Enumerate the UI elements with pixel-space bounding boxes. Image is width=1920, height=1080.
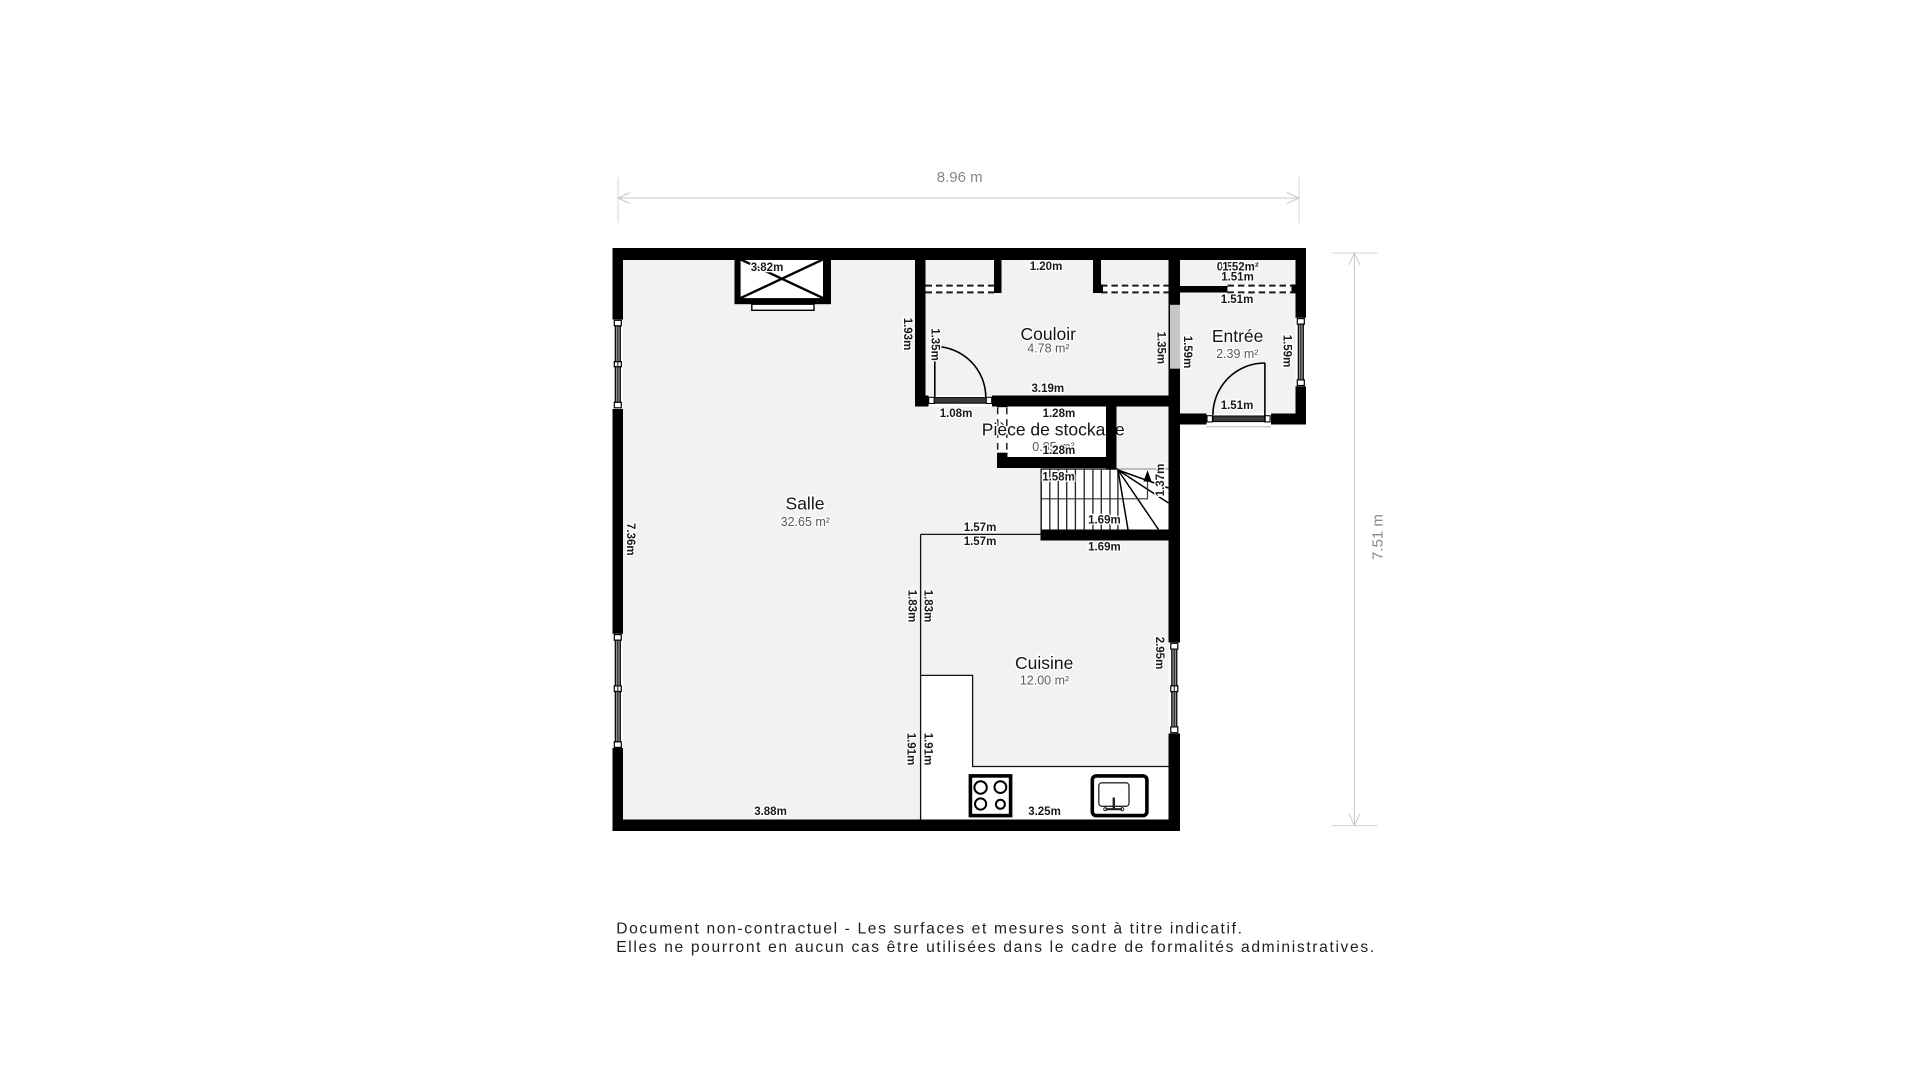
svg-text:3.88m: 3.88m bbox=[754, 806, 787, 818]
svg-text:1.35m: 1.35m bbox=[929, 328, 941, 361]
svg-text:1.51m: 1.51m bbox=[1221, 272, 1254, 284]
svg-text:1.83m: 1.83m bbox=[922, 590, 934, 623]
svg-text:1.57m: 1.57m bbox=[964, 522, 997, 534]
svg-text:1.93m: 1.93m bbox=[901, 318, 913, 351]
svg-text:Pièce de stockage: Pièce de stockage bbox=[982, 420, 1125, 440]
svg-text:1.69m: 1.69m bbox=[1088, 515, 1121, 527]
svg-text:Elles ne pourront en aucun cas: Elles ne pourront en aucun cas être util… bbox=[616, 939, 1376, 956]
svg-text:1.37m: 1.37m bbox=[1155, 464, 1167, 497]
svg-text:Cuisine: Cuisine bbox=[1015, 653, 1073, 673]
svg-text:8.96 m: 8.96 m bbox=[937, 169, 983, 186]
svg-text:1.57m: 1.57m bbox=[964, 536, 997, 548]
svg-text:7.51 m: 7.51 m bbox=[1369, 514, 1386, 560]
svg-text:Entrée: Entrée bbox=[1212, 326, 1264, 346]
svg-text:12.00 m²: 12.00 m² bbox=[1020, 674, 1069, 688]
svg-text:Salle: Salle bbox=[786, 494, 825, 514]
svg-text:1.51m: 1.51m bbox=[1221, 294, 1254, 306]
svg-text:1.83m: 1.83m bbox=[906, 590, 918, 623]
svg-text:7.36m: 7.36m bbox=[624, 523, 636, 556]
svg-text:1.58m: 1.58m bbox=[1042, 472, 1075, 484]
svg-text:3.25m: 3.25m bbox=[1028, 806, 1061, 818]
svg-text:1.69m: 1.69m bbox=[1088, 541, 1121, 553]
svg-text:1.91m: 1.91m bbox=[922, 733, 934, 766]
svg-text:1.20m: 1.20m bbox=[1030, 261, 1063, 273]
svg-text:1.51m: 1.51m bbox=[1221, 400, 1254, 412]
svg-text:1.28m: 1.28m bbox=[1043, 408, 1076, 420]
svg-text:1.28m: 1.28m bbox=[1043, 445, 1076, 457]
svg-text:2.95m: 2.95m bbox=[1153, 637, 1165, 670]
svg-text:1.08m: 1.08m bbox=[940, 408, 973, 420]
svg-text:3.19m: 3.19m bbox=[1031, 383, 1064, 395]
svg-text:4.78 m²: 4.78 m² bbox=[1027, 341, 1069, 355]
svg-text:1.35m: 1.35m bbox=[1154, 331, 1166, 364]
svg-text:1.59m: 1.59m bbox=[1181, 336, 1193, 369]
svg-text:32.65 m²: 32.65 m² bbox=[781, 515, 830, 529]
svg-text:Document non-contractuel - Les: Document non-contractuel - Les surfaces … bbox=[616, 921, 1243, 938]
svg-text:2.39 m²: 2.39 m² bbox=[1216, 347, 1258, 361]
svg-text:1.59m: 1.59m bbox=[1281, 335, 1293, 368]
svg-text:3.82m: 3.82m bbox=[751, 262, 784, 274]
svg-text:1.91m: 1.91m bbox=[905, 733, 917, 766]
